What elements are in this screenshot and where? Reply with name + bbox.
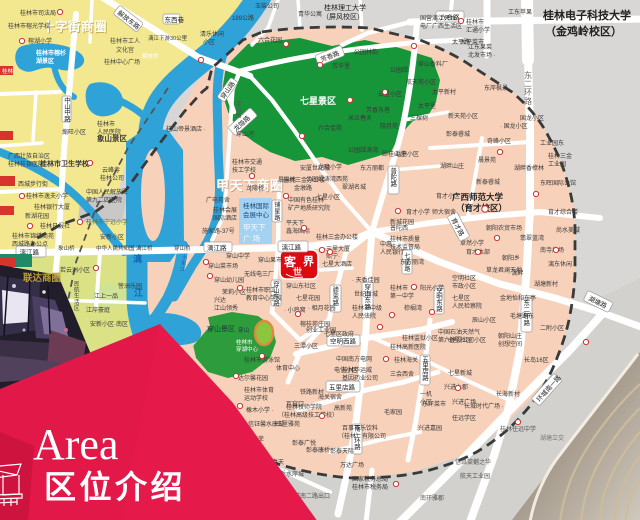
- svg-text:南寺广场: 南寺广场: [540, 246, 564, 254]
- svg-text:电厂广西生活区: 电厂广西生活区: [420, 22, 462, 30]
- svg-text:· 小鸡窝: · 小鸡窝: [284, 306, 306, 314]
- svg-text:工业园东: 工业园东: [540, 139, 564, 147]
- svg-text:人民医院: 人民医院: [97, 128, 121, 136]
- svg-text:阳光小学: 阳光小学: [420, 284, 444, 292]
- svg-text:榕湖小学: 榕湖小学: [28, 37, 52, 45]
- svg-text:运动学校: 运动学校: [244, 394, 268, 402]
- svg-text:湖畔山庄: 湖畔山庄: [440, 162, 464, 170]
- svg-text:万达广场: 万达广场: [340, 461, 364, 469]
- svg-text:第一中学: 第一中学: [390, 292, 414, 300]
- svg-text:桂林市工人: 桂林市工人: [110, 37, 140, 45]
- svg-text:广电苑舍: 广电苑舍: [206, 196, 230, 204]
- svg-text:彰泰康桥: 彰泰康桥: [306, 446, 330, 454]
- svg-text:桂林市逸夫小学: 桂林市逸夫小学: [26, 192, 68, 200]
- svg-text:穿山路: 穿山路: [236, 100, 242, 120]
- svg-text:师大宿舍: 师大宿舍: [432, 208, 456, 216]
- svg-text:五里店路: 五里店路: [422, 356, 429, 382]
- svg-text:· 相月花园: · 相月花园: [308, 304, 336, 312]
- svg-text:国营漓江天线: 国营漓江天线: [420, 14, 456, 22]
- svg-text:（桂林）有限公司: （桂林）有限公司: [338, 432, 386, 440]
- svg-text:（金鸡岭校区）: （金鸡岭校区）: [545, 24, 622, 38]
- svg-text:青华公寓: 青华公寓: [298, 10, 322, 18]
- svg-text:桂林监狱小区: 桂林监狱小区: [402, 334, 438, 342]
- svg-text:长城时代广场 ·: 长城时代广场 ·: [464, 402, 504, 410]
- svg-text:东环菜市: 东环菜市: [422, 400, 446, 408]
- svg-text:第九二四医院: 第九二四医院: [86, 196, 122, 204]
- svg-text:信昌棠樾之华: 信昌棠樾之华: [455, 458, 491, 466]
- svg-text:平天下: 平天下: [286, 220, 304, 227]
- svg-text:湖景区: 湖景区: [36, 57, 54, 65]
- svg-text:桂林市宁远小学: 桂林市宁远小学: [86, 218, 128, 226]
- svg-text:解放桥: 解放桥: [142, 52, 159, 60]
- svg-text:广西壮族自治区: 广西壮族自治区: [8, 152, 50, 160]
- svg-text:穿山: 穿山: [238, 326, 249, 334]
- svg-text:湖畔香樟林: 湖畔香樟林: [514, 164, 544, 172]
- svg-text:晨景苑: 晨景苑: [478, 156, 496, 164]
- svg-text:公园绿涛湾: 公园绿涛湾: [348, 146, 378, 154]
- svg-text:桂林市: 桂林市: [236, 338, 253, 346]
- svg-text:二附小区: 二附小区: [540, 324, 564, 332]
- svg-text:桂林海关: 桂林海关: [394, 356, 418, 364]
- svg-text:技术监督局: 技术监督局: [390, 243, 420, 251]
- svg-text:翡翠蓝湾: 翡翠蓝湾: [520, 234, 544, 242]
- svg-text:尚水美域: 尚水美域: [556, 226, 580, 234]
- svg-text:太平新村: 太平新村: [432, 88, 456, 96]
- svg-text:七星区政府: 七星区政府: [324, 330, 354, 338]
- svg-text:瓦窑口: 瓦窑口: [286, 400, 304, 408]
- svg-text:云峰寺: 云峰寺: [102, 166, 120, 174]
- svg-text:民航生活区: 民航生活区: [74, 281, 80, 312]
- svg-text:骖鸾路: 骖鸾路: [333, 285, 340, 307]
- svg-text:五里店路: 五里店路: [329, 383, 356, 392]
- svg-text:中山中路: 中山中路: [64, 96, 71, 123]
- svg-text:桂林市税务局: 桂林市税务局: [352, 483, 388, 491]
- svg-text:七星社区: 七星社区: [448, 336, 472, 344]
- svg-text:中国人民解放军: 中国人民解放军: [86, 188, 128, 196]
- svg-text:榕桂苑庄园: 榕桂苑庄园: [300, 320, 330, 328]
- svg-text:朝阳乡: 朝阳乡: [502, 254, 520, 262]
- svg-text:体育中心: 体育中心: [276, 364, 300, 372]
- svg-text:桂林会展: 桂林会展: [213, 206, 237, 214]
- svg-text:穿山香料厂: 穿山香料厂: [418, 60, 448, 68]
- svg-text:芳香东巷: 芳香东巷: [366, 106, 390, 114]
- svg-text:桂林三金办公楼: 桂林三金办公楼: [283, 176, 325, 184]
- svg-text:区位介绍: 区位介绍: [44, 469, 186, 505]
- svg-text:东方丽都: 东方丽都: [360, 164, 384, 172]
- svg-text:育才小区: 育才小区: [436, 192, 460, 200]
- svg-text:金墩路: 金墩路: [294, 184, 312, 192]
- svg-text:江上一品: 江上一品: [94, 292, 118, 300]
- svg-text:桂林市质量: 桂林市质量: [390, 235, 420, 243]
- svg-text:广 场: 广 场: [243, 233, 261, 243]
- svg-text:桂林市: 桂林市: [390, 284, 408, 292]
- svg-text:七星新城: 七星新城: [448, 369, 472, 377]
- svg-text:东方丽湾: 东方丽湾: [400, 258, 424, 266]
- svg-text:三会西舍: 三会西舍: [390, 370, 414, 378]
- svg-text:穿山果市: 穿山果市: [258, 256, 282, 264]
- svg-text:一机: 一机: [420, 390, 432, 398]
- svg-text:中国石油天然气: 中国石油天然气: [438, 328, 480, 336]
- svg-text:汇通小学: 汇通小学: [466, 26, 490, 34]
- svg-text:东岸枫景: 东岸枫景: [484, 84, 508, 92]
- svg-text:彰泰睿城: 彰泰睿城: [446, 130, 470, 138]
- svg-text:桂林市职工: 桂林市职工: [246, 286, 276, 294]
- svg-text:桂林市中级: 桂林市中级: [352, 304, 382, 312]
- svg-text:桂林日报社: 桂林日报社: [40, 222, 70, 230]
- svg-text:芳华里: 芳华里: [332, 62, 350, 70]
- svg-text:桂林银行大厦: 桂林银行大厦: [34, 203, 70, 211]
- svg-text:世: 世: [293, 266, 302, 277]
- svg-text:桂林市司法局: 桂林市司法局: [20, 9, 56, 17]
- svg-text:七星大酒店: 七星大酒店: [322, 260, 352, 268]
- svg-text:桂林市锦绣商苑: 桂林市锦绣商苑: [12, 232, 54, 240]
- svg-text:湖塘新村: 湖塘新村: [534, 280, 558, 288]
- svg-text:东晖国际公馆: 东晖国际公馆: [540, 179, 576, 187]
- svg-text:穿山河: 穿山河: [236, 130, 254, 138]
- svg-text:会展中心: 会展中心: [243, 210, 270, 219]
- svg-text:彰泰广悦: 彰泰广悦: [292, 439, 316, 447]
- svg-text:訾洲乐园: 訾洲乐园: [118, 283, 142, 290]
- svg-text:彰泰天际: 彰泰天际: [330, 447, 354, 455]
- svg-text:六合花园: 六合花园: [258, 36, 282, 44]
- svg-text:毛家园: 毛家园: [384, 408, 402, 416]
- svg-text:教育中心学校: 教育中心学校: [246, 294, 282, 302]
- svg-text:桂林市卫生学校: 桂林市卫生学校: [39, 159, 90, 168]
- svg-text:清乐休闲: 清乐休闲: [200, 30, 224, 38]
- svg-text:朝阳农贸市场: 朝阳农贸市场: [486, 224, 522, 232]
- svg-text:桂林三金办公楼: 桂林三金办公楼: [316, 233, 358, 241]
- svg-text:漓江路: 漓江路: [282, 243, 302, 252]
- svg-text:联达商圈: 联达商圈: [23, 272, 61, 284]
- svg-text:象山桥: 象山桥: [58, 244, 75, 252]
- svg-text:兴达: 兴达: [214, 296, 226, 304]
- svg-text:基因药业公司: 基因药业公司: [342, 374, 378, 382]
- svg-text:工业园: 工业园: [548, 160, 566, 168]
- svg-text:云星小区: 云星小区: [378, 90, 402, 98]
- svg-text:189公路: 189公路: [232, 14, 254, 22]
- svg-text:龙隐桥: 龙隐桥: [246, 184, 264, 192]
- svg-text:矿产地质研究院: 矿产地质研究院: [288, 204, 330, 212]
- svg-text:世纪新城: 世纪新城: [354, 290, 378, 298]
- svg-text:桂林电子科技大学: 桂林电子科技大学: [542, 8, 631, 22]
- svg-text:煽旺小区: 煽旺小区: [62, 128, 86, 136]
- svg-text:创想空间: 创想空间: [498, 340, 522, 348]
- svg-text:东二环路: 东二环路: [524, 298, 531, 327]
- svg-text:桂林任远中学: 桂林任远中学: [500, 425, 536, 433]
- svg-text:国家税务总局: 国家税务总局: [352, 475, 388, 483]
- svg-text:漓东休闲: 漓东休闲: [548, 260, 572, 268]
- svg-text:北发市场 ·: 北发市场 ·: [468, 51, 496, 59]
- svg-text:十字街商圈: 十字街商圈: [42, 19, 107, 34]
- svg-text:朝阳山庄: 朝阳山庄: [498, 332, 522, 340]
- svg-text:技工学校: 技工学校: [232, 166, 256, 174]
- svg-text:穿山中学: 穿山中学: [226, 252, 250, 260]
- svg-text:江岸豪庭: 江岸豪庭: [86, 306, 110, 314]
- svg-text:漓江路: 漓江路: [207, 243, 227, 252]
- svg-text:桂林桂银医院: 桂林桂银医院: [8, 160, 44, 168]
- svg-text:三棵树: 三棵树: [410, 114, 428, 122]
- svg-text:新泰睿城: 新泰睿城: [476, 178, 500, 186]
- svg-text:育才综合楼: 育才综合楼: [548, 208, 578, 216]
- svg-text:七星区: 七星区: [452, 294, 470, 302]
- svg-text:百事可乐饮料: 百事可乐饮料: [342, 424, 378, 432]
- svg-text:长海新村: 长海新村: [496, 390, 520, 398]
- svg-text:玉柴公司: 玉柴公司: [255, 2, 279, 10]
- svg-text:棕榈湾: 棕榈湾: [404, 304, 422, 312]
- svg-text:桂林: 桂林: [2, 67, 14, 75]
- svg-text:太平里: 太平里: [418, 102, 436, 110]
- svg-text:· 国龙小区: · 国龙小区: [500, 122, 528, 130]
- svg-text:桂林市榕杉: 桂林市榕杉: [35, 49, 66, 57]
- svg-text:桂山帝景酒店 ·: 桂山帝景酒店 ·: [166, 125, 206, 133]
- svg-text:航天工业园: 航天工业园: [460, 472, 490, 480]
- svg-text:国龙小区: 国龙小区: [520, 114, 544, 122]
- svg-text:漓江下游30公里: 漓江下游30公里: [148, 34, 188, 42]
- svg-text:米兰春天: 米兰春天: [348, 114, 372, 122]
- svg-text:Area: Area: [33, 420, 119, 469]
- svg-text:铺星路: 铺星路: [274, 201, 280, 222]
- svg-text:西城步行街: 西城步行街: [18, 180, 48, 188]
- svg-text:（屏风校区）: （屏风校区）: [322, 12, 364, 21]
- svg-text:安新小区·南区: 安新小区·南区: [90, 320, 128, 328]
- svg-text:施家路-37号: 施家路-37号: [202, 227, 235, 235]
- svg-text:东二环路: 东二环路: [524, 70, 532, 106]
- svg-text:桂林市体育: 桂林市体育: [244, 386, 274, 394]
- svg-text:达尔馨花园: 达尔馨花园: [238, 374, 268, 382]
- svg-text:兴进嘉园: 兴进嘉园: [418, 424, 442, 432]
- svg-text:太平菜市: 太平菜市: [460, 38, 484, 46]
- svg-text:辰山小区: 辰山小区: [472, 316, 496, 324]
- svg-text:七星花园: 七星花园: [296, 294, 320, 302]
- svg-text:卓然小学: 卓然小学: [460, 239, 484, 247]
- svg-text:桂林公司: 桂林公司: [100, 174, 124, 182]
- svg-text:桂林市榕光学校: 桂林市榕光学校: [8, 22, 50, 30]
- svg-text:中国南方电网: 中国南方电网: [336, 355, 372, 363]
- svg-text:市政小区: 市政小区: [452, 282, 476, 290]
- svg-text:· 天香佳园: · 天香佳园: [352, 276, 380, 284]
- svg-text:桂林市: 桂林市: [97, 120, 115, 128]
- svg-text:毛塘路东: 毛塘路东: [510, 312, 534, 320]
- svg-text:桂林三金: 桂林三金: [548, 152, 572, 160]
- svg-text:人民检察院: 人民检察院: [452, 302, 482, 310]
- svg-text:湖塘立交: 湖塘立交: [540, 434, 564, 442]
- svg-text:中华人民共和国 漓江桥: 中华人民共和国 漓江桥: [96, 244, 153, 252]
- svg-text:穿山景区: 穿山景区: [207, 324, 235, 333]
- svg-text:漓: 漓: [133, 253, 142, 264]
- svg-text:小区: 小区: [203, 38, 215, 46]
- svg-text:人民法院: 人民法院: [352, 312, 376, 320]
- svg-text:奇峰小区: 奇峰小区: [487, 137, 511, 145]
- svg-text:桂林国际: 桂林国际: [243, 201, 270, 210]
- svg-text:翠湖名城: 翠湖名城: [342, 183, 366, 191]
- svg-text:公园林韵: 公园林韵: [354, 48, 378, 56]
- svg-text:穿山幼儿园: 穿山幼儿园: [214, 276, 244, 284]
- svg-text:穿山菜市场: 穿山菜市场: [208, 262, 238, 270]
- svg-text:新城花园: 新城花园: [390, 218, 414, 226]
- svg-text:普陀路: 普陀路: [391, 166, 398, 188]
- svg-text:桂林理工大学: 桂林理工大学: [324, 3, 366, 12]
- svg-text:三潭小区: 三潭小区: [294, 342, 318, 350]
- svg-text:若云洲小区: 若云洲小区: [60, 266, 90, 274]
- svg-text:金地怡和东亭: 金地怡和东亭: [500, 294, 536, 302]
- svg-text:文化宫: 文化宫: [116, 46, 134, 54]
- svg-text:高新苑: 高新苑: [334, 404, 352, 412]
- svg-text:空明社区: 空明社区: [452, 274, 476, 282]
- svg-text:新湖花园: 新湖花园: [25, 212, 49, 220]
- svg-text:育才小学: 育才小学: [406, 208, 430, 216]
- svg-text:穿山东社区: 穿山东社区: [286, 282, 316, 290]
- svg-text:国际酒店: 国际酒店: [213, 214, 237, 222]
- svg-text:海关宿舍: 海关宿舍: [318, 393, 342, 401]
- svg-text:· 湖畔: · 湖畔: [508, 269, 524, 277]
- svg-text:毛塘小区: 毛塘小区: [395, 150, 419, 158]
- svg-text:六合佳苑: 六合佳苑: [318, 124, 342, 132]
- svg-text:桂林高新医院: 桂林高新医院: [390, 343, 426, 351]
- svg-text:中国有色桂林: 中国有色桂林: [288, 196, 324, 204]
- svg-text:长岛16区: 长岛16区: [524, 356, 549, 364]
- svg-text:公园绿: 公园绿: [390, 66, 408, 74]
- svg-text:三里雅苑: 三里雅苑: [276, 420, 300, 428]
- svg-text:橡木小学 ·: 橡木小学 ·: [246, 406, 274, 414]
- svg-text:安厦世纪城: 安厦世纪城: [300, 164, 330, 172]
- svg-text:穿山桥: 穿山桥: [174, 244, 191, 252]
- svg-text:安新小区: 安新小区: [100, 233, 124, 241]
- svg-text:穿湖中心: 穿湖中心: [236, 345, 259, 353]
- svg-text:桂林市: 桂林市: [466, 18, 484, 26]
- svg-text:无线电三厂: 无线电三厂: [244, 270, 274, 278]
- svg-text:新天苑小区: 新天苑小区: [448, 112, 478, 120]
- svg-text:工东苹果: 工东苹果: [508, 8, 532, 16]
- svg-text:桂林中心广场: 桂林中心广场: [104, 58, 140, 66]
- svg-text:任远学区: 任远学区: [452, 414, 476, 422]
- svg-text:江山领秀: 江山领秀: [214, 304, 238, 312]
- svg-text:西城路办公点: 西城路办公点: [12, 240, 48, 248]
- svg-text:（桂林高级技工学校）: （桂林高级技工学校）: [278, 411, 338, 419]
- svg-text:甲天下: 甲天下: [243, 223, 266, 232]
- svg-text:界: 界: [303, 255, 314, 268]
- svg-text:桂林市交通: 桂林市交通: [232, 158, 262, 166]
- svg-text:七星景区: 七星景区: [300, 95, 336, 106]
- svg-text:航天苑小区: 航天苑小区: [406, 78, 436, 86]
- svg-text:隐月苑: 隐月苑: [380, 122, 398, 130]
- svg-text:南环雅郡: 南环雅郡: [420, 494, 444, 502]
- svg-text:普陀西: 普陀西: [390, 224, 408, 232]
- svg-text:东西巷: 东西巷: [165, 15, 185, 24]
- svg-text:电信小区: 电信小区: [334, 366, 358, 374]
